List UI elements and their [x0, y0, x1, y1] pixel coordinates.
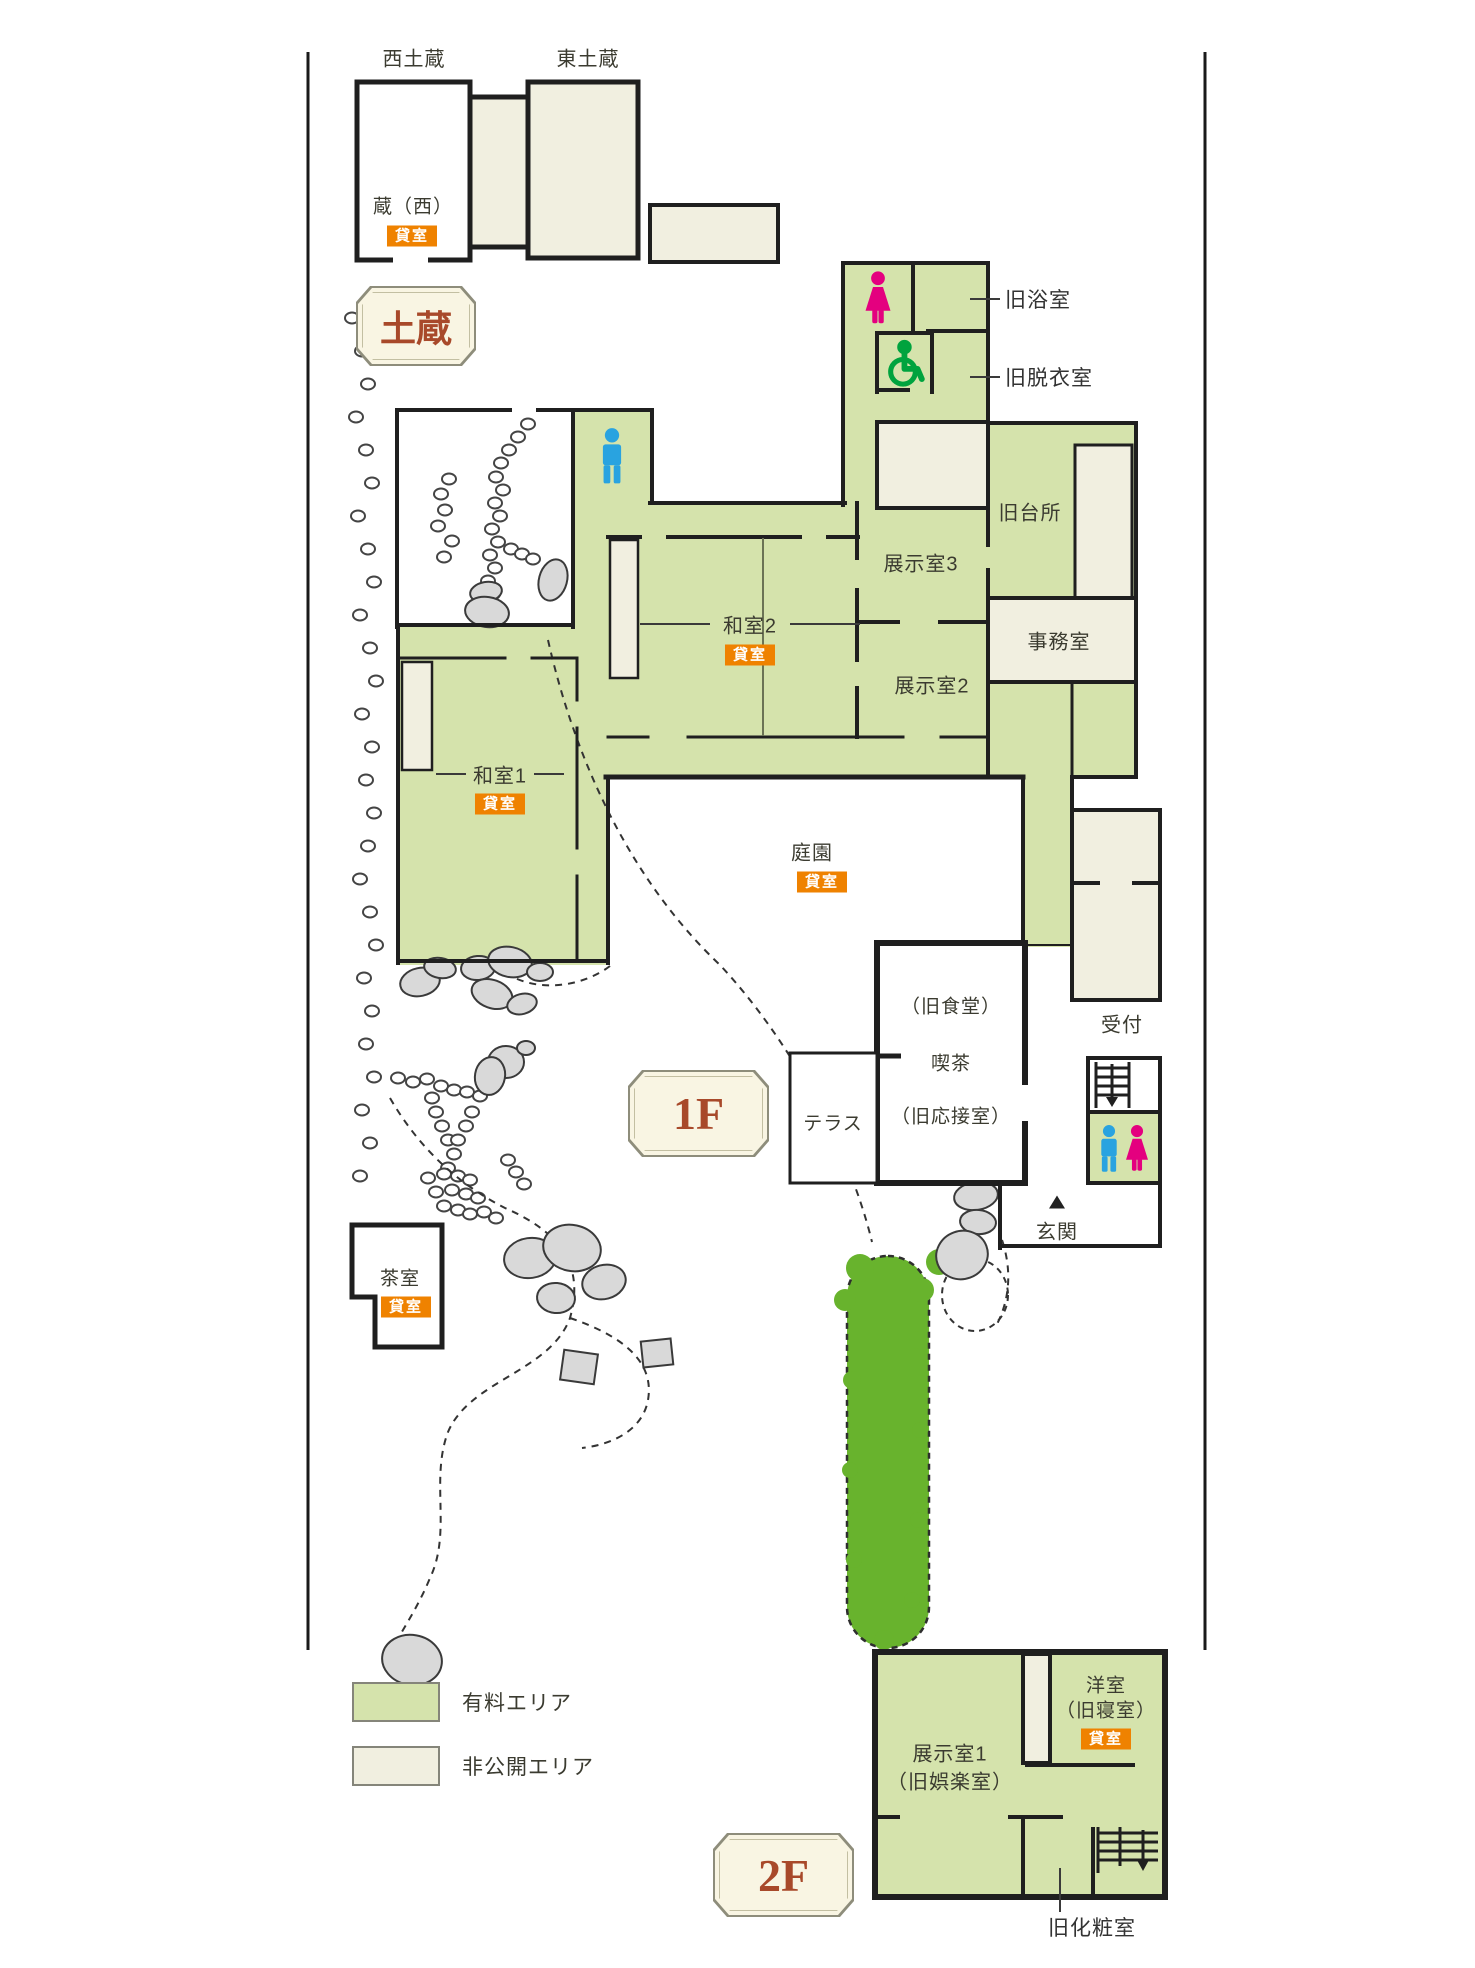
stepping-stone	[359, 1039, 373, 1050]
label-cafe: 喫茶	[931, 1049, 971, 1076]
label-cafe-old-drawing-room: （旧応接室）	[891, 1102, 1011, 1129]
stepping-stone	[429, 1187, 443, 1198]
label-old-dressing-room: 旧脱衣室	[1005, 362, 1093, 392]
stepping-stone	[429, 1107, 443, 1118]
label-old-bedroom: （旧寝室）	[1056, 1696, 1156, 1723]
cafe-door-gap	[1020, 1085, 1030, 1121]
floor-plan-drawing	[0, 0, 1475, 1968]
stepping-stone	[434, 489, 448, 500]
rental-badge-kura: 貸室	[387, 226, 437, 247]
garden-rock	[527, 963, 553, 981]
stepping-stone	[365, 1006, 379, 1017]
garden-tree-bump	[874, 1630, 894, 1650]
stepping-stone	[361, 544, 375, 555]
entrance-direction-marker	[1049, 1196, 1065, 1209]
label-office: 事務室	[1028, 626, 1091, 655]
garden-tree-bump	[910, 1278, 934, 1302]
garden-path	[996, 1240, 1008, 1326]
legend-paid-swatch	[352, 1682, 440, 1722]
stepping-stone	[521, 419, 535, 430]
stepping-stone	[437, 552, 451, 563]
label-old-bathroom: 旧浴室	[1005, 284, 1071, 314]
kura-section-badge: 土蔵	[356, 286, 476, 366]
rental-badge-washitsu1: 貸室	[475, 794, 525, 815]
room-east-kura	[528, 82, 638, 258]
garden-rock	[517, 1041, 535, 1055]
label-exhibit-room-1: 展示室1	[912, 1738, 987, 1767]
label-western-room: 洋室	[1086, 1671, 1126, 1698]
stepping-stone	[363, 907, 377, 918]
stepping-stone	[493, 511, 507, 522]
room-private-mid	[877, 422, 988, 508]
stepping-stone	[502, 445, 516, 456]
stepping-stone	[447, 1149, 461, 1160]
stepping-stone	[367, 577, 381, 588]
garden-tree-bump	[909, 1331, 927, 1349]
stepping-stone	[425, 1093, 439, 1104]
stepping-stone	[359, 775, 373, 786]
washitsu1-tokonoma	[402, 662, 432, 770]
garden-tree-bump	[842, 1462, 858, 1478]
label-cafe-old-dining: （旧食堂）	[901, 992, 1001, 1019]
stepping-stone	[351, 511, 365, 522]
stepping-stone	[494, 458, 508, 469]
legend-paid-area: 有料エリア	[352, 1682, 572, 1722]
stepping-stone	[437, 1201, 451, 1212]
stepping-stone	[489, 1213, 503, 1224]
stepping-stone	[465, 1107, 479, 1118]
room-reception-building	[1072, 810, 1160, 1000]
room-right-wing	[988, 680, 1136, 777]
label-tearoom: 茶室	[380, 1264, 420, 1291]
label-exhibit-room-2: 展示室2	[894, 670, 969, 699]
label-washitsu-1: 和室1	[473, 760, 527, 789]
garden-tree-bump	[910, 1512, 926, 1528]
stepping-stone	[349, 412, 363, 423]
room-kitchen-strip	[1075, 445, 1132, 600]
stairs-1f-icon	[1096, 1062, 1129, 1108]
stepping-stone	[463, 1209, 477, 1220]
garden-tree-bump	[846, 1254, 874, 1282]
garden-tree-bump	[843, 1371, 861, 1389]
stepping-stone	[353, 610, 367, 621]
garden-path	[386, 1098, 574, 1660]
stepping-stone	[442, 474, 456, 485]
label-terrace: テラス	[803, 1109, 863, 1136]
kura-annex	[650, 205, 778, 262]
rental-badge-western-room: 貸室	[1081, 1729, 1131, 1750]
garden-stone	[641, 1339, 674, 1368]
label-washitsu-2: 和室2	[723, 610, 777, 639]
stepping-stone	[363, 643, 377, 654]
stepping-stone	[420, 1074, 434, 1085]
stepping-stone	[434, 1081, 448, 1092]
floor-plan-page: 西土蔵 東土蔵 蔵（西） 貸室 土蔵 旧浴室 旧脱衣室 旧台所 展示室3 事務室…	[0, 0, 1475, 1968]
courtyard-north	[652, 410, 843, 503]
label-exhibit-room-3: 展示室3	[883, 548, 958, 577]
rental-badge-washitsu2: 貸室	[725, 645, 775, 666]
stepping-stone	[517, 1179, 531, 1190]
stepping-stone	[488, 563, 502, 574]
label-old-kitchen: 旧台所	[999, 497, 1062, 526]
stepping-stone	[438, 505, 452, 516]
floor1-badge: 1F	[628, 1070, 769, 1157]
stepping-stone	[483, 550, 497, 561]
stepping-stone	[355, 1105, 369, 1116]
stepping-stone	[361, 379, 375, 390]
stepping-stone	[359, 445, 373, 456]
label-old-game-room: （旧娯楽室）	[887, 1766, 1013, 1795]
stepping-stone	[488, 498, 502, 509]
stepping-stone	[485, 524, 499, 535]
stepping-stone	[431, 521, 445, 532]
stepping-stone	[509, 1167, 523, 1178]
garden-tree-bump	[904, 1592, 920, 1608]
stepping-stone	[435, 1121, 449, 1132]
stepping-stone	[361, 841, 375, 852]
stepping-stone	[369, 940, 383, 951]
stepping-stone	[511, 432, 525, 443]
label-kura-west-room: 蔵（西）	[373, 192, 453, 219]
label-west-kura: 西土蔵	[383, 43, 446, 72]
rental-badge-tearoom: 貸室	[381, 1297, 431, 1318]
stepping-stone	[526, 554, 540, 565]
stepping-stone	[471, 1193, 485, 1204]
stepping-stone	[491, 537, 505, 548]
stepping-stone	[355, 709, 369, 720]
room-2f-hall-strip	[1023, 1654, 1050, 1763]
west-kura-door-gap	[393, 252, 428, 268]
corridor-to-reception	[1023, 775, 1072, 947]
garden-rock	[378, 1630, 446, 1690]
garden-tree-bump	[912, 1422, 928, 1438]
stepping-stone	[489, 472, 503, 483]
stepping-stone	[421, 1173, 435, 1184]
stepping-stone	[406, 1077, 420, 1088]
garden-tree-bump	[834, 1289, 856, 1311]
stepping-stone	[447, 1085, 461, 1096]
kura-connector	[470, 97, 528, 247]
garden-rock	[536, 1281, 576, 1314]
label-old-powder-room: 旧化粧室	[1048, 1912, 1136, 1942]
stepping-stone	[365, 478, 379, 489]
stepping-stone	[367, 1072, 381, 1083]
label-entrance: 玄関	[1036, 1216, 1078, 1245]
stepping-stone	[391, 1073, 405, 1084]
stepping-stone	[496, 485, 510, 496]
label-east-kura: 東土蔵	[557, 43, 620, 72]
legend-paid-label: 有料エリア	[462, 1687, 572, 1717]
rental-badge-garden: 貸室	[797, 872, 847, 893]
stepping-stone	[459, 1121, 473, 1132]
garden-tree	[847, 1256, 929, 1648]
floor2-badge: 2F	[713, 1833, 854, 1917]
stepping-stone	[460, 1087, 474, 1098]
room-entrance-toilet	[1088, 1112, 1160, 1183]
stepping-stone	[445, 1185, 459, 1196]
stepping-stone	[353, 874, 367, 885]
stepping-stone	[501, 1155, 515, 1166]
stepping-stone	[357, 973, 371, 984]
washitsu2-tokonoma	[610, 540, 638, 678]
stepping-stone	[369, 676, 383, 687]
stepping-stone	[367, 808, 381, 819]
garden-tree-bump	[846, 1552, 862, 1568]
stepping-stone	[451, 1135, 465, 1146]
stepping-stone	[463, 1175, 477, 1186]
legend-private-swatch	[352, 1746, 440, 1786]
stepping-stone	[445, 536, 459, 547]
stepping-stone	[363, 1138, 377, 1149]
label-reception: 受付	[1101, 1009, 1143, 1038]
stepping-stone	[353, 1171, 367, 1182]
garden-stone	[560, 1350, 598, 1384]
legend-private-area: 非公開エリア	[352, 1746, 594, 1786]
stepping-stone	[365, 742, 379, 753]
legend-private-label: 非公開エリア	[462, 1751, 594, 1781]
label-garden: 庭園	[791, 837, 833, 866]
